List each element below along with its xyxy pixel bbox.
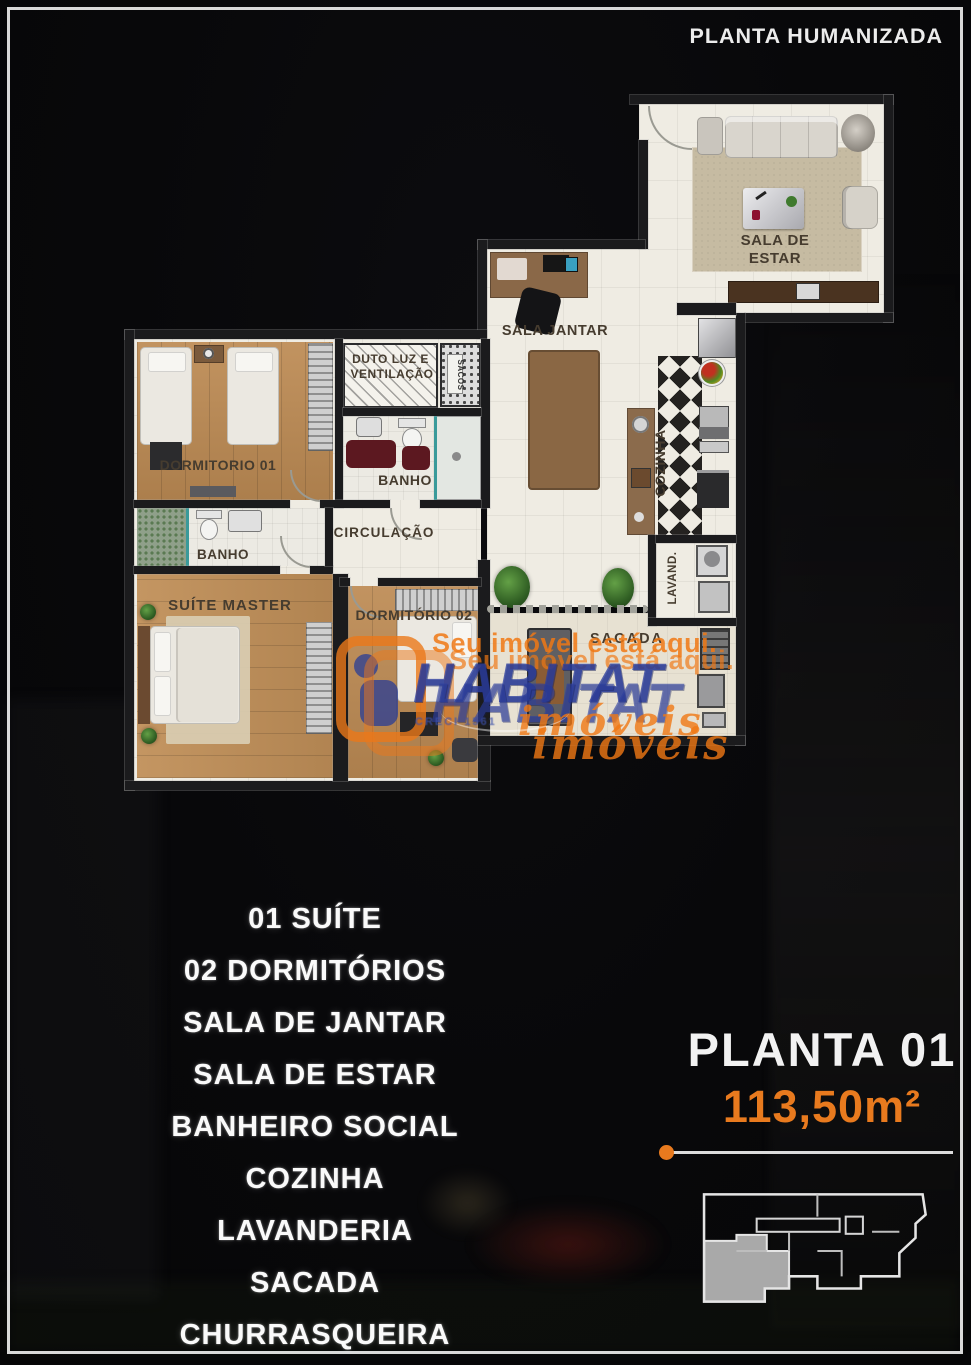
watermark-brand-type: imóveis: [532, 720, 729, 770]
wall: [677, 303, 736, 315]
bath-rug: [402, 446, 430, 470]
unit-name: PLANTA 01: [672, 1022, 971, 1077]
wall: [125, 330, 487, 339]
drawer: [699, 441, 729, 453]
wardrobe-suite: [306, 622, 332, 734]
pillow: [148, 352, 186, 372]
duvet: [176, 628, 238, 722]
oven: [699, 406, 729, 439]
wall: [125, 330, 134, 790]
plant: [602, 568, 634, 608]
table-plant: [786, 196, 797, 207]
bg-building-right: [770, 270, 965, 1330]
feature-item: COZINHA: [105, 1153, 525, 1205]
label-dormitorio-02: DORMITÓRIO 02: [344, 607, 484, 624]
toilet-tank: [196, 510, 222, 519]
feature-item: SALA DE ESTAR: [105, 1049, 525, 1101]
table-decor: [752, 210, 760, 220]
feature-item: LAVANDERIA: [105, 1205, 525, 1257]
label-sacos: SACOS: [430, 345, 490, 405]
label-suite-master: SUÍTE MASTER: [165, 597, 295, 615]
divider-dot: [659, 1145, 674, 1160]
wall: [310, 566, 333, 574]
armchair: [842, 186, 878, 229]
wall: [478, 240, 487, 339]
wall: [884, 95, 893, 322]
wall: [736, 313, 745, 745]
wall: [320, 500, 390, 508]
feature-item: BANHEIRO SOCIAL: [105, 1101, 525, 1153]
wall: [378, 578, 481, 586]
pillow: [154, 632, 171, 672]
wall: [335, 339, 343, 508]
label-lavanderia: LAVAND.: [633, 538, 713, 618]
desk-papers: [497, 258, 527, 280]
wall: [125, 781, 490, 790]
label-banho-social: BANHO: [360, 472, 450, 489]
floor-lamp: [841, 114, 875, 152]
feature-item: 02 DORMITÓRIOS: [105, 945, 525, 997]
label-banho-suite: BANHO: [178, 547, 268, 563]
label-dormitorio-01: DORMITORIO 01: [153, 457, 283, 474]
fruit-bowl: [701, 362, 723, 384]
label-cozinha: COZINHA: [621, 423, 701, 503]
label-circulacao: CIRCULAÇÃO: [328, 525, 440, 541]
wall: [478, 240, 645, 249]
chaise: [697, 117, 723, 155]
keyplan-core: [757, 1219, 840, 1232]
dining-table: [528, 350, 600, 490]
feature-item: SALA DE JANTAR: [105, 997, 525, 1049]
keyplan-shaft: [846, 1217, 863, 1234]
label-sala-jantar: SALA JANTAR: [490, 323, 620, 341]
counter-knob: [634, 512, 644, 522]
feature-item: 01 SUÍTE: [105, 893, 525, 945]
screen: [566, 258, 577, 271]
watermark-creci: CRECI 1561: [415, 716, 497, 728]
tv: [797, 284, 819, 299]
page-title: PLANTA HUMANIZADA: [690, 24, 943, 49]
pillow: [235, 352, 273, 372]
flyer-canvas: PLANTA HUMANIZADA: [0, 0, 971, 1365]
feature-item: SACADA: [105, 1257, 525, 1309]
bench-dorm1: [190, 486, 236, 497]
wall: [745, 313, 893, 322]
nightstand-lamp: [203, 348, 214, 359]
bath-rug: [346, 440, 396, 468]
keyplan-unit-highlight: [704, 1235, 789, 1302]
sofa: [725, 116, 838, 158]
label-duto: DUTO LUZ E VENTILAÇÃO: [346, 352, 435, 381]
unit-area: 113,50m²: [672, 1081, 971, 1133]
divider-line: [668, 1151, 953, 1154]
wall: [639, 140, 648, 249]
wall: [134, 500, 290, 508]
microwave-cabinet: [697, 470, 729, 508]
label-text: DUTO LUZ E VENTILAÇÃO: [351, 352, 431, 381]
wall: [134, 566, 280, 574]
toilet-tank: [398, 418, 426, 428]
wall: [630, 95, 893, 104]
headboard: [138, 626, 150, 724]
label-sala-estar: SALA DE ESTAR: [705, 232, 845, 269]
vanity: [228, 510, 262, 532]
toilet-bowl: [200, 519, 218, 540]
wall: [648, 618, 736, 626]
bathroom-sink: [356, 417, 382, 437]
shower-handle: [452, 452, 461, 461]
potted-plant: [141, 728, 157, 744]
wardrobe-dorm1: [308, 343, 333, 451]
building-keyplan: [700, 1190, 955, 1308]
feature-item: CHURRASQUEIRA: [105, 1309, 525, 1361]
wall: [343, 408, 481, 416]
label-text: SALA DE ESTAR: [725, 232, 825, 269]
chair-dorm2: [452, 738, 478, 762]
pillow: [154, 676, 171, 716]
balcony-railing: [487, 605, 648, 613]
coffee-table: [743, 188, 804, 229]
feature-list: 01 SUÍTE 02 DORMITÓRIOS SALA DE JANTAR S…: [105, 893, 525, 1361]
plant: [494, 566, 530, 608]
potted-plant: [140, 604, 156, 620]
wall: [420, 500, 481, 508]
wall: [340, 578, 350, 586]
fridge: [698, 318, 736, 358]
unit-block: PLANTA 01 113,50m²: [672, 1022, 971, 1133]
